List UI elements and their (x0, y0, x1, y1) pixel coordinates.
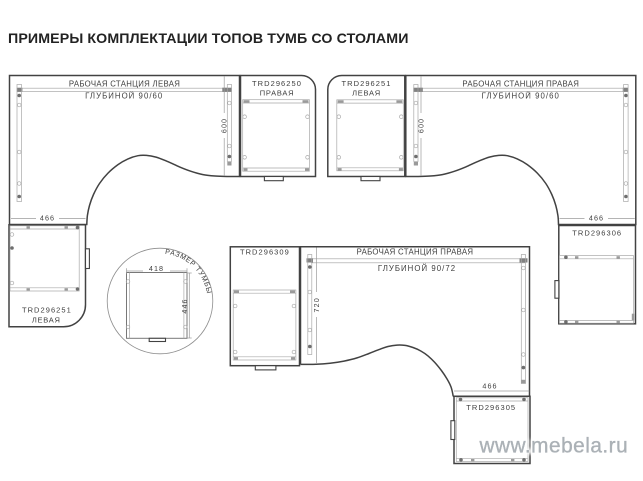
svg-text:466: 466 (589, 214, 604, 223)
svg-text:TRD296251: TRD296251 (342, 79, 392, 88)
svg-text:ПРАВАЯ: ПРАВАЯ (260, 88, 295, 97)
svg-text:ЛЕВАЯ: ЛЕВАЯ (32, 315, 61, 324)
svg-text:418: 418 (149, 264, 164, 273)
svg-text:ЛЕВАЯ: ЛЕВАЯ (352, 88, 381, 97)
svg-text:www.mebela.ru: www.mebela.ru (479, 434, 629, 457)
svg-text:TRD296309: TRD296309 (240, 247, 290, 256)
svg-text:TRD296251: TRD296251 (22, 305, 72, 314)
svg-text:РАБОЧАЯ СТАНЦИЯ ЛЕВАЯ: РАБОЧАЯ СТАНЦИЯ ЛЕВАЯ (69, 80, 180, 89)
svg-text:720: 720 (312, 297, 321, 312)
svg-text:600: 600 (417, 118, 426, 133)
svg-text:446: 446 (180, 298, 189, 313)
svg-text:466: 466 (482, 381, 497, 390)
svg-text:466: 466 (40, 214, 55, 223)
svg-text:ГЛУБИНОЙ 90/72: ГЛУБИНОЙ 90/72 (378, 264, 456, 273)
svg-text:TRD296306: TRD296306 (572, 228, 622, 237)
svg-text:600: 600 (220, 118, 229, 133)
svg-text:ГЛУБИНОЙ 90/60: ГЛУБИНОЙ 90/60 (482, 91, 560, 100)
svg-text:ГЛУБИНОЙ 90/60: ГЛУБИНОЙ 90/60 (85, 91, 163, 100)
svg-text:TRD296250: TRD296250 (252, 79, 302, 88)
svg-text:ПРИМЕРЫ КОМПЛЕКТАЦИИ ТОПОВ ТУМ: ПРИМЕРЫ КОМПЛЕКТАЦИИ ТОПОВ ТУМБ СО СТОЛА… (8, 31, 409, 47)
svg-text:РАБОЧАЯ СТАНЦИЯ ПРАВАЯ: РАБОЧАЯ СТАНЦИЯ ПРАВАЯ (462, 80, 579, 89)
svg-text:TRD296305: TRD296305 (466, 403, 516, 412)
svg-text:РАБОЧАЯ СТАНЦИЯ ПРАВАЯ: РАБОЧАЯ СТАНЦИЯ ПРАВАЯ (357, 247, 474, 256)
